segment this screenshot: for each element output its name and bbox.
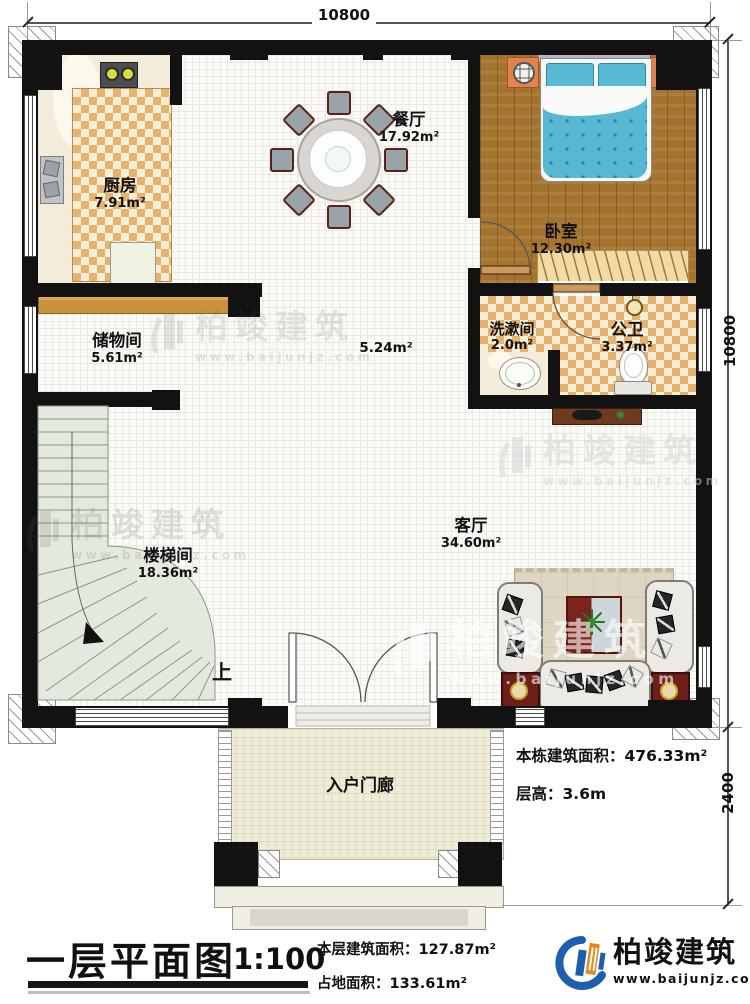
- stove-burner-icon: [105, 67, 119, 81]
- dining-chair: [327, 205, 351, 229]
- window: [24, 95, 36, 257]
- storage-counter: [38, 296, 236, 314]
- land-area-stat: 占地面积：133.61m²: [317, 972, 467, 993]
- wall-segment: [548, 350, 560, 395]
- wall-pier: [656, 40, 712, 90]
- column-pad: [258, 850, 280, 878]
- column-pad: [438, 850, 460, 878]
- toilet-tank: [614, 381, 652, 395]
- tv: [572, 410, 602, 420]
- dining-chair: [327, 91, 351, 115]
- building-total-area: 本栋建筑面积：476.33m²: [516, 744, 707, 766]
- room-label-bathroom: 公卫 3.37m²: [601, 320, 652, 355]
- stove-burner-icon: [121, 67, 135, 81]
- room-label-storage: 储物间 5.61m²: [91, 331, 142, 366]
- table-medallion-icon: [660, 682, 678, 700]
- wall-segment: [468, 283, 553, 296]
- wall-segment: [468, 296, 480, 409]
- plan-scale: 1:100: [233, 942, 325, 976]
- lamp-icon: [513, 62, 535, 84]
- room-label-living: 客厅 34.60m²: [441, 516, 501, 551]
- wall-segment: [468, 395, 712, 409]
- window: [698, 646, 710, 688]
- wall-segment: [170, 55, 182, 105]
- wall-segment: [600, 283, 712, 296]
- sofa-pillow: [656, 615, 676, 635]
- bed-pillow: [546, 63, 594, 88]
- wall-pier: [228, 698, 262, 728]
- washbasin-bowl: [505, 362, 535, 385]
- porch-step-1: [214, 886, 504, 908]
- window: [698, 88, 710, 250]
- porch-column: [214, 842, 258, 886]
- dining-table-center: [325, 146, 351, 172]
- porch-column: [458, 842, 502, 886]
- room-label-kitchen: 厨房 7.91m²: [94, 176, 145, 211]
- plan-title: 一层平面图: [26, 931, 236, 987]
- ceiling-lamp-icon: [626, 299, 643, 316]
- wall-segment: [22, 283, 262, 297]
- window: [698, 308, 710, 372]
- room-label-hallway: 5.24m²: [359, 340, 412, 356]
- wall-segment: [468, 40, 480, 218]
- brand-text: 柏竣建筑 www.baijunjz.com: [613, 938, 750, 986]
- window: [24, 306, 36, 374]
- window: [515, 708, 545, 726]
- sink-basin: [43, 181, 60, 198]
- room-label-stairwell: 楼梯间 18.36m²: [138, 546, 198, 581]
- brand-logo-icon: [551, 933, 609, 997]
- floor-area-stat: 本层建筑面积：127.87m²: [317, 938, 496, 959]
- sink-basin: [43, 160, 61, 178]
- floor-plan: 10800 10800 2400 厨房 7.91m² 餐厅 17.92m² 卧室…: [0, 0, 750, 1004]
- floor-height: 层高：3.6m: [516, 782, 606, 804]
- plant-decor: [616, 411, 625, 419]
- title-underline: [28, 981, 308, 988]
- sofa-pillow: [565, 673, 585, 693]
- sofa-pillow: [585, 675, 603, 693]
- dimension-label-top: 10800: [312, 6, 376, 24]
- porch-side-frame-right: [490, 730, 504, 844]
- stair-up-label: 上: [212, 660, 232, 684]
- kitchen-appliance: [110, 242, 156, 284]
- plant-icon: [578, 608, 606, 636]
- porch-step-shade: [250, 909, 468, 926]
- wall-pier: [437, 698, 471, 728]
- dimension-label-right-main: 10800: [721, 311, 739, 371]
- dimension-label-right-porch: 2400: [719, 767, 737, 819]
- dining-chair: [270, 148, 294, 172]
- wall-pier: [228, 283, 260, 317]
- window: [75, 708, 229, 726]
- extension-line: [502, 905, 742, 906]
- brand-logo: [551, 933, 609, 997]
- sofa-pillow: [506, 639, 526, 659]
- wall-pier: [22, 40, 62, 90]
- wall-pier: [152, 390, 180, 410]
- table-medallion-icon: [510, 682, 528, 700]
- wall-pier: [648, 700, 712, 728]
- title-underline-shadow: [28, 991, 310, 994]
- porch-side-frame-left: [218, 730, 232, 844]
- brand-url: www.baijunjz.com: [613, 971, 750, 986]
- room-label-washroom: 洗漱间 2.0m²: [489, 320, 534, 354]
- basin-drain-icon: [517, 383, 521, 387]
- wall-pier: [363, 40, 383, 60]
- room-label-bedroom: 卧室 12.30m²: [531, 222, 591, 257]
- dining-chair: [384, 148, 408, 172]
- bed-pillow: [598, 63, 646, 88]
- wall-pier: [230, 40, 268, 60]
- room-label-dining: 餐厅 17.92m²: [379, 110, 439, 145]
- toilet-bowl: [624, 353, 643, 378]
- room-label-porch: 入户门廊: [326, 776, 394, 796]
- brand-name: 柏竣建筑: [613, 938, 750, 967]
